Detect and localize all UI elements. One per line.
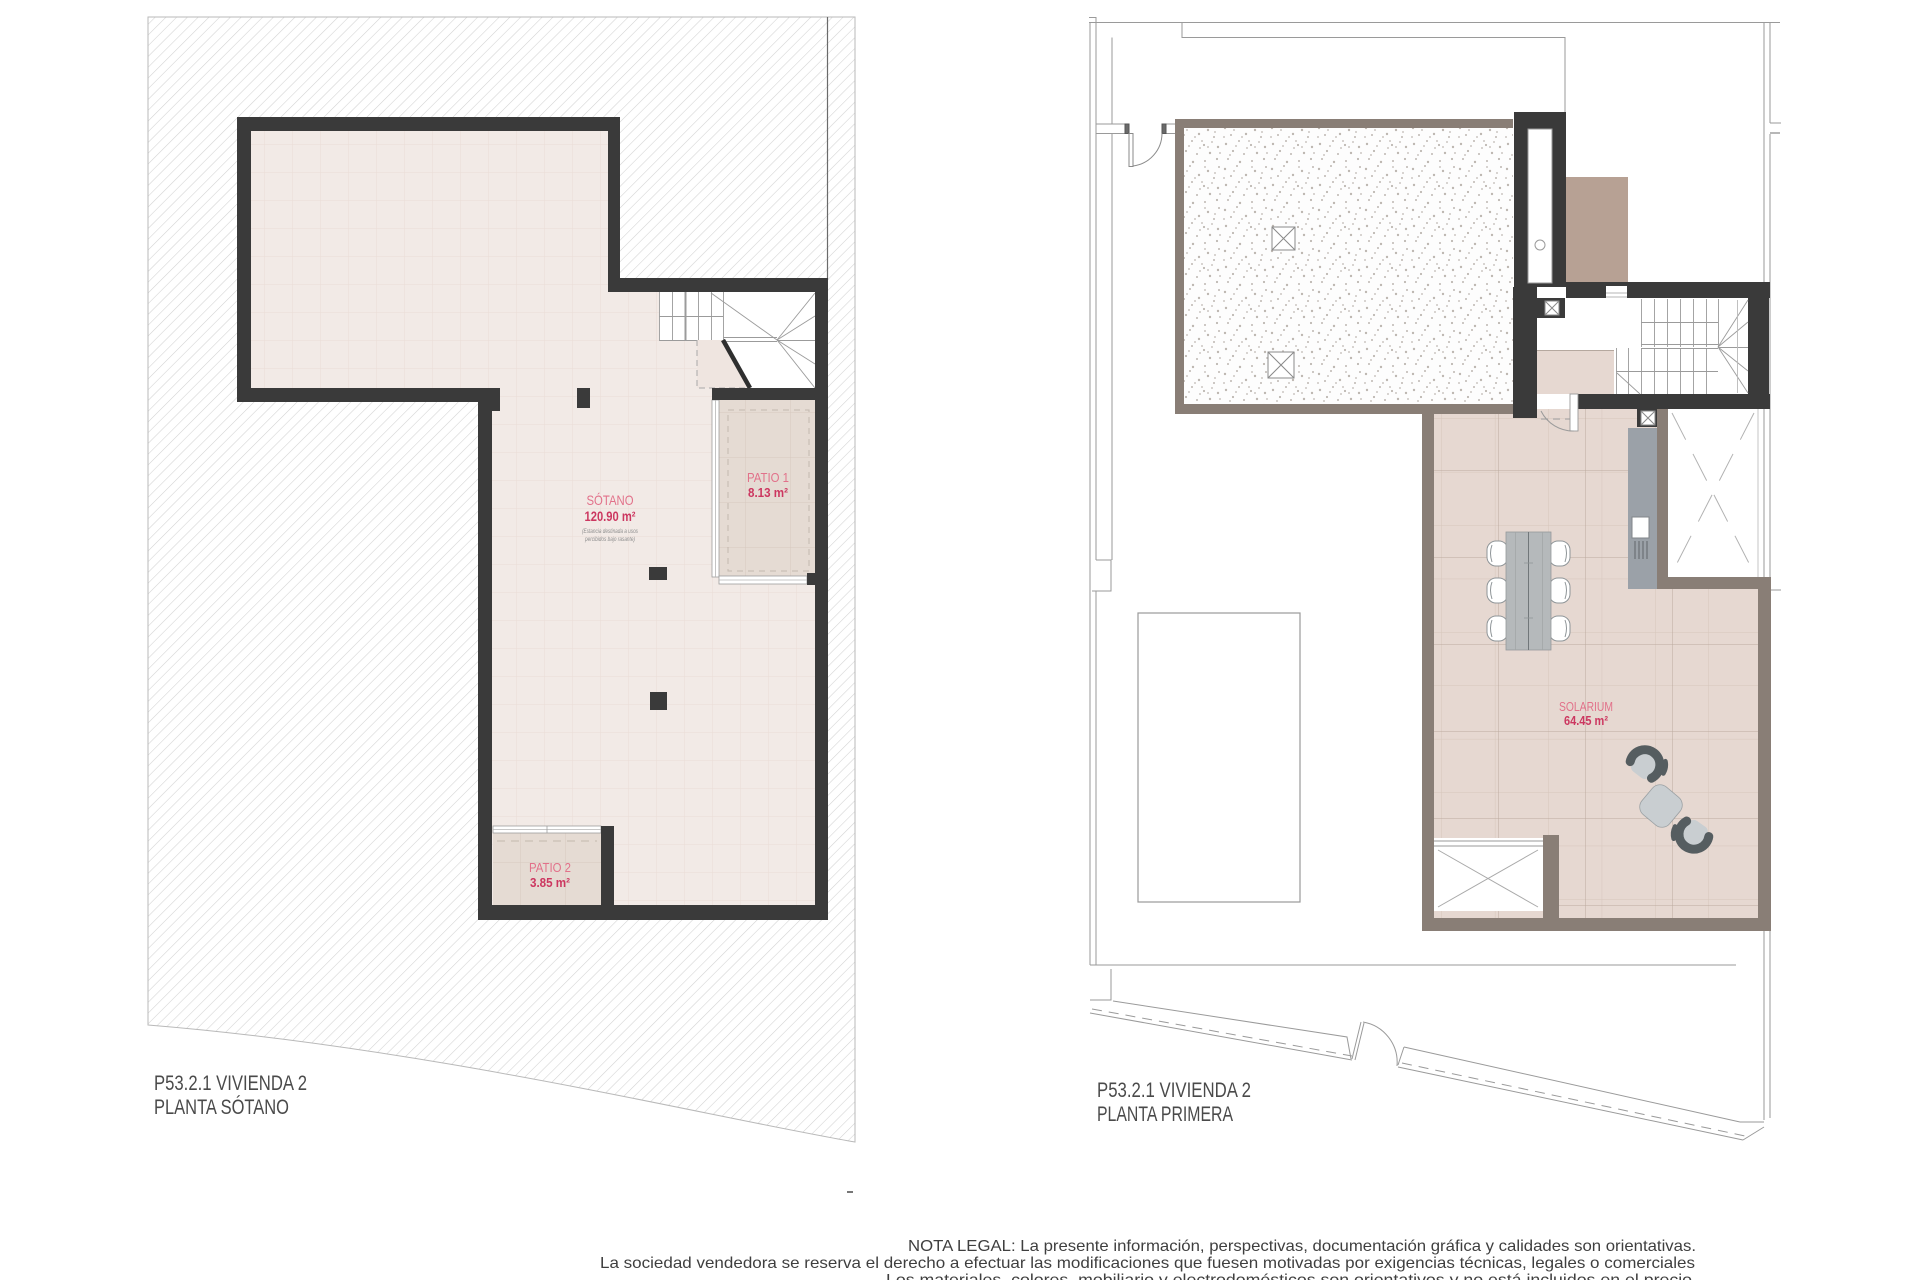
- svg-text:percibidos bajo rasante): percibidos bajo rasante): [584, 537, 635, 543]
- svg-text:La sociedad vendedora se reser: La sociedad vendedora se reserva el dere…: [600, 1255, 1695, 1272]
- svg-text:SÓTANO: SÓTANO: [587, 492, 634, 508]
- svg-text:PLANTA SÓTANO: PLANTA SÓTANO: [154, 1096, 289, 1119]
- svg-text:PLANTA PRIMERA: PLANTA PRIMERA: [1097, 1103, 1233, 1126]
- svg-text:SOLARIUM: SOLARIUM: [1559, 699, 1613, 714]
- svg-text:120.90 m²: 120.90 m²: [585, 508, 636, 524]
- svg-text:(Estancia destinada a usos: (Estancia destinada a usos: [582, 529, 638, 535]
- svg-text:P53.2.1 VIVIENDA 2: P53.2.1 VIVIENDA 2: [154, 1072, 307, 1095]
- svg-text:NOTA LEGAL: La presente inform: NOTA LEGAL: La presente información, per…: [908, 1238, 1696, 1255]
- svg-text:PATIO 2: PATIO 2: [529, 860, 571, 875]
- svg-text:64.45 m²: 64.45 m²: [1564, 713, 1609, 728]
- svg-text:Los materiales, colores, mobil: Los materiales, colores, mobiliario y el…: [886, 1272, 1692, 1280]
- svg-text:3.85 m²: 3.85 m²: [530, 875, 571, 890]
- svg-text:8.13 m²: 8.13 m²: [748, 485, 789, 500]
- svg-text:PATIO 1: PATIO 1: [747, 470, 789, 485]
- svg-text:P53.2.1 VIVIENDA 2: P53.2.1 VIVIENDA 2: [1097, 1079, 1251, 1102]
